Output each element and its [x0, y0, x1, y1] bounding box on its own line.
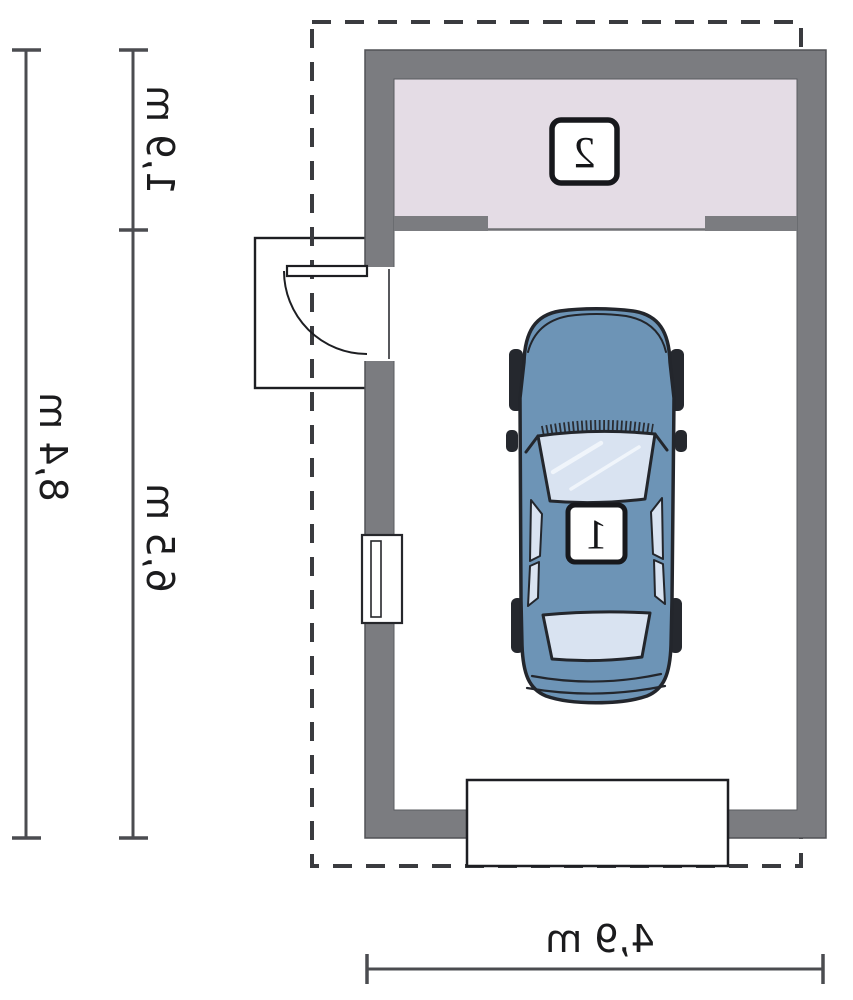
dim-label-total-height: 8,4 m — [31, 392, 75, 502]
side-window-right-rear — [654, 560, 665, 604]
mirror-left — [506, 430, 518, 452]
divider-stub-left — [394, 216, 488, 231]
window-frame — [362, 535, 402, 623]
dim-label-garage-height: 6,5 m — [138, 483, 182, 593]
entry-door-leaf — [287, 266, 367, 276]
windshield — [538, 431, 655, 502]
divider-stub-right — [705, 216, 797, 231]
door-opening — [361, 267, 397, 361]
window — [362, 535, 402, 623]
room2-label: 2 — [552, 120, 617, 183]
floor-plan-svg: 1 2 8,4 m 1,9 m 6,5 m 4,9 m — [0, 0, 853, 1000]
dim-label-bottom-width: 4,9 m — [545, 917, 655, 961]
dim-label-room2-height: 1,9 m — [138, 85, 182, 195]
wall-bottom-right — [728, 810, 826, 838]
window-glazing-line — [371, 541, 381, 617]
mirror-right — [675, 430, 687, 452]
room2-number: 2 — [574, 128, 596, 177]
wall-right — [797, 50, 826, 838]
rear-window — [543, 612, 650, 661]
wall-bottom-left — [365, 810, 467, 838]
wall-left-upper — [365, 50, 394, 267]
side-window-left-rear — [528, 562, 539, 606]
car-top-view: 1 — [506, 309, 687, 703]
floor-plan-page: 1 2 8,4 m 1,9 m 6,5 m 4,9 m — [0, 0, 853, 1000]
wall-top — [365, 50, 826, 79]
room1-number: 1 — [586, 513, 607, 559]
garage-door — [467, 780, 728, 866]
